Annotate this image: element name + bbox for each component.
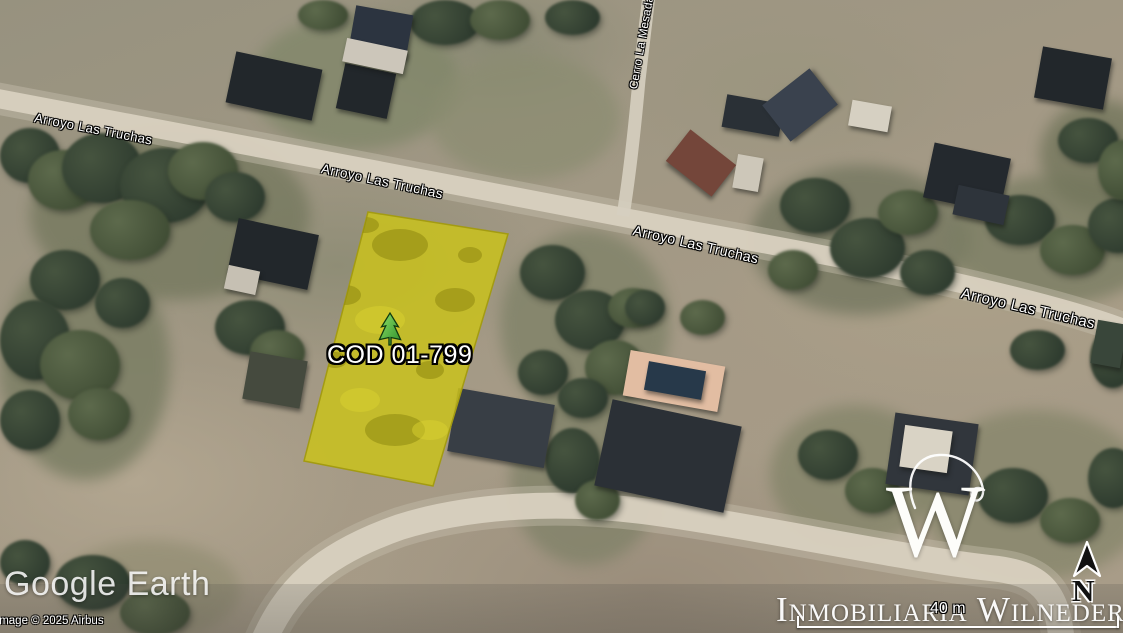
north-letter: N: [1072, 573, 1094, 609]
north-indicator: N: [1066, 540, 1108, 612]
wilneder-logo-letter: W: [886, 478, 984, 566]
scale-tick-right: [1117, 616, 1119, 628]
imagery-copyright: Image © 2025 Airbus: [0, 615, 104, 627]
satellite-map-canvas[interactable]: COD 01-799 Arroyo Las Truchas Arroyo Las…: [0, 0, 1123, 633]
parcel-code-label: COD 01-799: [327, 341, 472, 370]
scale-distance-label: 40 m: [930, 600, 966, 618]
google-earth-watermark: Google Earth: [4, 565, 210, 604]
scale-line: [797, 626, 1119, 628]
